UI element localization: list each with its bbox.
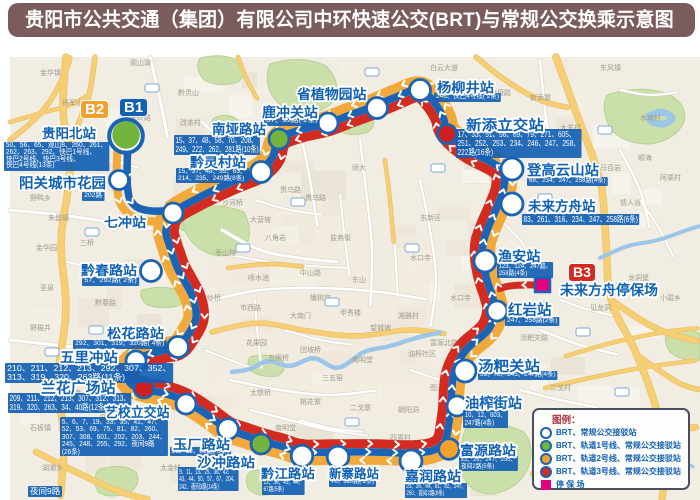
svg-text:东风镇: 东风镇 (600, 63, 621, 72)
svg-text:市西路: 市西路 (240, 303, 261, 312)
svg-text:观山湖: 观山湖 (130, 58, 151, 67)
svg-text:团坡桥: 团坡桥 (300, 345, 321, 354)
svg-text:中山路: 中山路 (300, 268, 321, 277)
svg-text:马百岩: 马百岩 (600, 163, 621, 172)
svg-text:东山: 东山 (352, 275, 366, 284)
svg-text:朝阳洞: 朝阳洞 (398, 405, 419, 414)
svg-text:油榨社区: 油榨社区 (408, 349, 436, 358)
svg-text:白云大道: 白云大道 (430, 63, 458, 72)
svg-text:师大: 师大 (352, 163, 366, 172)
svg-text:小碧乡: 小碧乡 (660, 293, 681, 302)
svg-text:二戈村: 二戈村 (550, 383, 571, 392)
svg-text:南明堂: 南明堂 (275, 423, 296, 432)
svg-text:见龙洞: 见龙洞 (590, 303, 611, 312)
svg-text:贵乌路: 贵乌路 (305, 193, 326, 202)
svg-text:金华园: 金华园 (36, 243, 57, 252)
svg-text:情人谷: 情人谷 (620, 198, 641, 207)
svg-text:金华镇: 金华镇 (40, 68, 61, 77)
svg-text:水口寺: 水口寺 (450, 293, 471, 302)
svg-text:南明堂: 南明堂 (352, 355, 373, 364)
svg-text:三桥: 三桥 (80, 238, 94, 247)
svg-text:水口寺: 水口寺 (410, 253, 431, 262)
svg-text:二戈寨: 二戈寨 (350, 403, 371, 412)
svg-text:八角岩: 八角岩 (265, 233, 286, 242)
svg-text:黔灵山: 黔灵山 (178, 88, 199, 97)
svg-text:三五窑: 三五窑 (322, 373, 343, 382)
svg-text:改茶村: 改茶村 (180, 118, 201, 127)
svg-text:桃花寨: 桃花寨 (300, 397, 321, 406)
svg-text:贵乌路: 贵乌路 (280, 185, 301, 194)
svg-text:阿栗村: 阿栗村 (660, 173, 681, 182)
svg-text:新添寨: 新添寨 (530, 93, 551, 102)
svg-text:石板镇: 石板镇 (30, 423, 51, 432)
svg-text:水塘村: 水塘村 (640, 113, 661, 122)
svg-text:枣山路: 枣山路 (215, 248, 236, 257)
svg-text:喷水池: 喷水池 (248, 273, 269, 282)
svg-text:沙河桥: 沙河桥 (222, 198, 243, 207)
svg-text:东新区: 东新区 (420, 213, 441, 222)
svg-text:顺海: 顺海 (638, 153, 652, 162)
svg-text:汤粑关路: 汤粑关路 (520, 333, 548, 342)
svg-text:野鸭乡: 野鸭乡 (30, 193, 51, 202)
svg-text:大营坡: 大营坡 (250, 215, 271, 224)
svg-text:野猫井: 野猫井 (30, 323, 51, 332)
svg-text:大南门: 大南门 (290, 311, 311, 320)
svg-text:黔春路: 黔春路 (95, 298, 116, 307)
svg-text:盐务街: 盐务街 (330, 233, 351, 242)
svg-text:花果园: 花果园 (246, 338, 267, 347)
svg-text:甲秀楼: 甲秀楼 (340, 308, 361, 317)
svg-text:望城坡: 望城坡 (370, 323, 391, 332)
svg-text:朱昌镇: 朱昌镇 (48, 213, 69, 222)
svg-text:太慈桥: 太慈桥 (250, 388, 271, 397)
svg-text:湘雅村: 湘雅村 (398, 311, 419, 320)
svg-text:湖潮乡: 湖潮乡 (42, 463, 63, 472)
svg-text:五眼桥: 五眼桥 (268, 353, 289, 362)
svg-text:圣泉: 圣泉 (40, 283, 54, 292)
